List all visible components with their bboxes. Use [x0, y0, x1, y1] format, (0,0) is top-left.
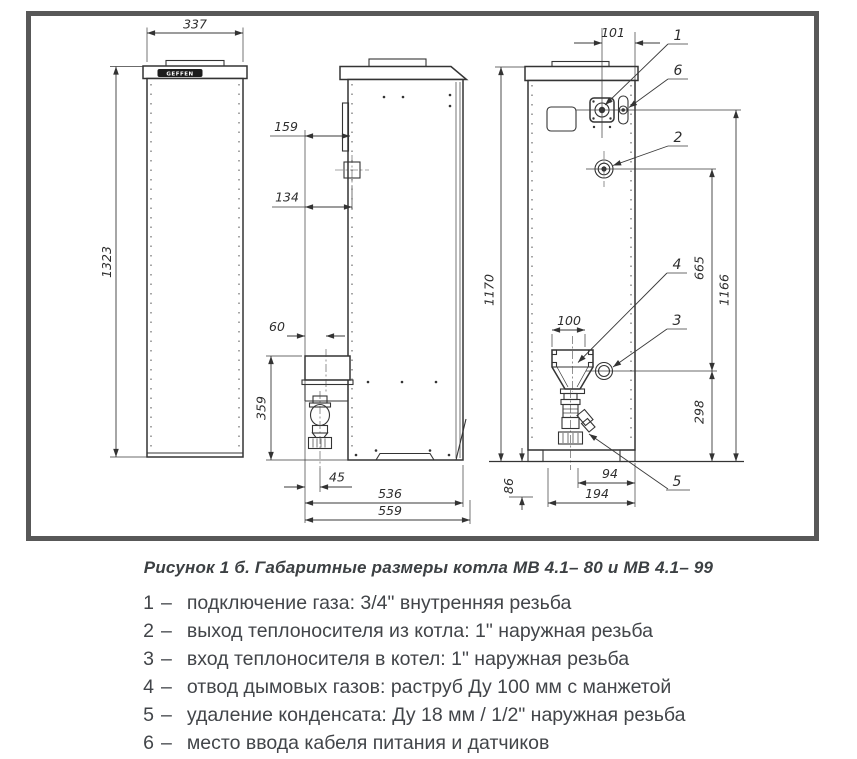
legend-text: подключение газа: 3/4" внутренняя резьба — [187, 589, 572, 617]
legend-item-5: 5 – удаление конденсата: Ду 18 мм / 1/2"… — [137, 701, 857, 729]
figure-legend: 1 – подключение газа: 3/4" внутренняя ре… — [0, 589, 857, 757]
technical-drawing: GEFFEN 337 1323 — [0, 0, 857, 545]
callout-flue-outlet: 4 — [673, 257, 682, 273]
legend-dash: – — [161, 701, 172, 729]
boiler-dimensions-page: GEFFEN 337 1323 — [0, 0, 857, 759]
legend-text: выход теплоносителя из котла: 1" наружна… — [187, 617, 653, 645]
legend-dash: – — [161, 617, 172, 645]
legend-item-6: 6 – место ввода кабеля питания и датчико… — [137, 729, 857, 757]
brand-label: GEFFEN — [166, 72, 193, 78]
legend-text: место ввода кабеля питания и датчиков — [187, 729, 550, 757]
legend-dash: – — [161, 729, 172, 757]
legend-item-3: 3 – вход теплоносителя в котел: 1" наруж… — [137, 645, 857, 673]
dim-drain-offset: 94 — [602, 466, 618, 481]
legend-item-4: 4 – отвод дымовых газов: раструб Ду 100 … — [137, 673, 857, 701]
dim-side-fitting: 134 — [275, 190, 299, 205]
legend-dash: – — [161, 645, 172, 673]
callout-cable-entry: 6 — [674, 63, 683, 79]
legend-num: 2 — [137, 617, 154, 645]
dim-box-height: 359 — [254, 396, 269, 420]
dim-box-offset: 60 — [269, 319, 285, 334]
legend-num: 1 — [137, 589, 154, 617]
dim-depth-total: 559 — [378, 503, 402, 518]
dim-flow-height: 665 — [692, 256, 707, 280]
dim-return-height: 298 — [692, 400, 707, 424]
legend-text: удаление конденсата: Ду 18 мм / 1/2" нар… — [187, 701, 686, 729]
dim-gas-height: 1166 — [717, 274, 732, 306]
legend-num: 4 — [137, 673, 154, 701]
legend-dash: – — [161, 673, 172, 701]
callout-return-in: 3 — [673, 313, 682, 329]
dim-siphon-offset: 45 — [329, 470, 345, 485]
dim-back-height: 1170 — [482, 274, 497, 306]
figure-caption: Рисунок 1 б. Габаритные размеры котла МВ… — [0, 558, 857, 578]
dim-condensate-drop: 86 — [501, 478, 516, 494]
dim-gas-offset: 101 — [601, 25, 625, 40]
callout-condensate: 5 — [673, 474, 682, 490]
legend-num: 6 — [137, 729, 154, 757]
legend-item-1: 1 – подключение газа: 3/4" внутренняя ре… — [137, 589, 857, 617]
legend-text: отвод дымовых газов: раструб Ду 100 мм с… — [187, 673, 671, 701]
legend-num: 3 — [137, 645, 154, 673]
legend-dash: – — [161, 589, 172, 617]
callout-flow-out: 2 — [674, 130, 683, 146]
dim-flue-width: 100 — [557, 313, 581, 328]
legend-item-2: 2 – выход теплоносителя из котла: 1" нар… — [137, 617, 857, 645]
dim-depth-body: 536 — [378, 486, 402, 501]
dim-front-height: 1323 — [99, 246, 114, 278]
dim-front-width: 337 — [183, 17, 207, 32]
dim-drain-total: 194 — [585, 486, 609, 501]
callout-gas: 1 — [674, 28, 683, 44]
dim-side-bracket: 159 — [274, 119, 298, 134]
legend-num: 5 — [137, 701, 154, 729]
legend-text: вход теплоносителя в котел: 1" наружная … — [187, 645, 629, 673]
